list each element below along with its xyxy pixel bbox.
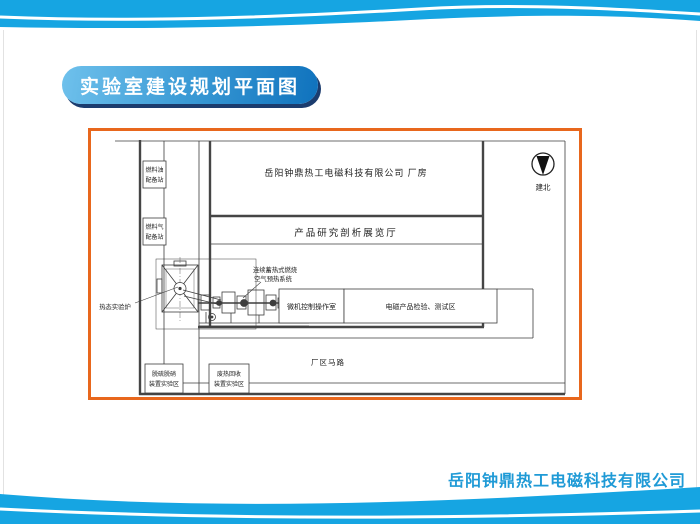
fuel-gas-station-label-line1: 燃料气 (145, 223, 163, 231)
fuel-oil-station-label-line2: 配备站 (145, 176, 163, 184)
test-area-label: 电磁产品检验、测试区 (386, 302, 456, 311)
plan-thin-walls (115, 141, 565, 394)
plan-labels: 岳阳钟鼎热工电磁科技有限公司 厂房 产品研究剖析展览厅 燃料油 配备站 燃料气 … (99, 166, 455, 388)
presentation-slide: 实验室建设规划平面图 (0, 0, 700, 524)
fuel-oil-station-label-line1: 燃料油 (145, 166, 163, 174)
hot-test-furnace-label: 热态实验炉 (99, 302, 130, 311)
plan-thick-walls (139, 140, 565, 395)
slide-right-edge (696, 30, 697, 498)
page-title: 实验室建设规划平面图 (62, 66, 318, 104)
floor-plan-drawing: 建北 岳阳钟鼎热工电磁科技有限公司 厂房 产品研究剖析展览厅 燃料油 配备站 燃… (91, 131, 579, 397)
fuel-gas-station-label-line2: 配备站 (145, 233, 163, 241)
page-title-text: 实验室建设规划平面图 (80, 72, 300, 99)
desulfurization-label-line2: 装置实验区 (149, 380, 179, 388)
bottom-wave-decoration (0, 478, 700, 524)
exhibition-hall-label: 产品研究剖析展览厅 (294, 227, 398, 239)
preheat-system-label-line2: 空气预热系统 (254, 274, 292, 283)
control-room-label: 微机控制操作室 (287, 302, 336, 311)
factory-building-label: 岳阳钟鼎热工电磁科技有限公司 厂房 (264, 167, 427, 178)
waste-heat-label-line1: 废热回收 (217, 370, 241, 378)
road-label: 厂区马路 (311, 357, 345, 367)
north-arrow-label: 建北 (536, 182, 551, 192)
waste-heat-box (209, 364, 249, 393)
floor-plan-frame: 建北 岳阳钟鼎热工电磁科技有限公司 厂房 产品研究剖析展览厅 燃料油 配备站 燃… (88, 128, 582, 400)
north-arrow: 建北 (532, 153, 554, 192)
desulfurization-box (145, 364, 183, 393)
top-wave-decoration (0, 0, 700, 46)
desulfurization-label-line1: 脱硫脱硝 (152, 370, 176, 378)
furnace-unit (157, 257, 198, 323)
slide-left-edge (3, 30, 4, 498)
waste-heat-label-line2: 装置实验区 (214, 380, 244, 388)
preheat-system-label-line1: 连续蓄热式燃烧 (253, 265, 298, 274)
